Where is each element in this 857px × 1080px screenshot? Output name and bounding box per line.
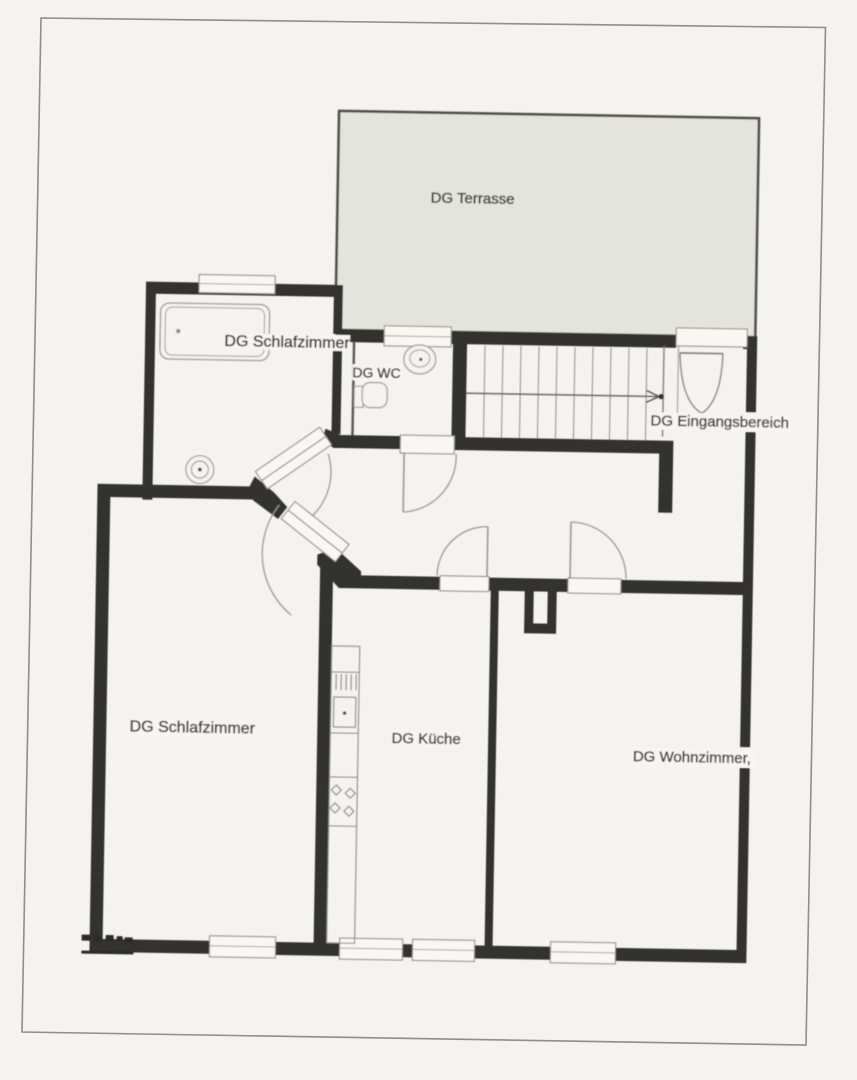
svg-text:DG WC: DG WC — [352, 364, 400, 381]
svg-text:DG Terrasse: DG Terrasse — [430, 190, 514, 208]
svg-text:DG Küche: DG Küche — [391, 730, 460, 748]
svg-text:DG Schlafzimmer: DG Schlafzimmer — [130, 718, 256, 737]
svg-text:DG Schlafzimmer: DG Schlafzimmer — [224, 333, 350, 352]
svg-text:DG Wohnzimmer,: DG Wohnzimmer, — [633, 748, 751, 767]
svg-text:DG Eingangsbereich: DG Eingangsbereich — [650, 412, 789, 431]
